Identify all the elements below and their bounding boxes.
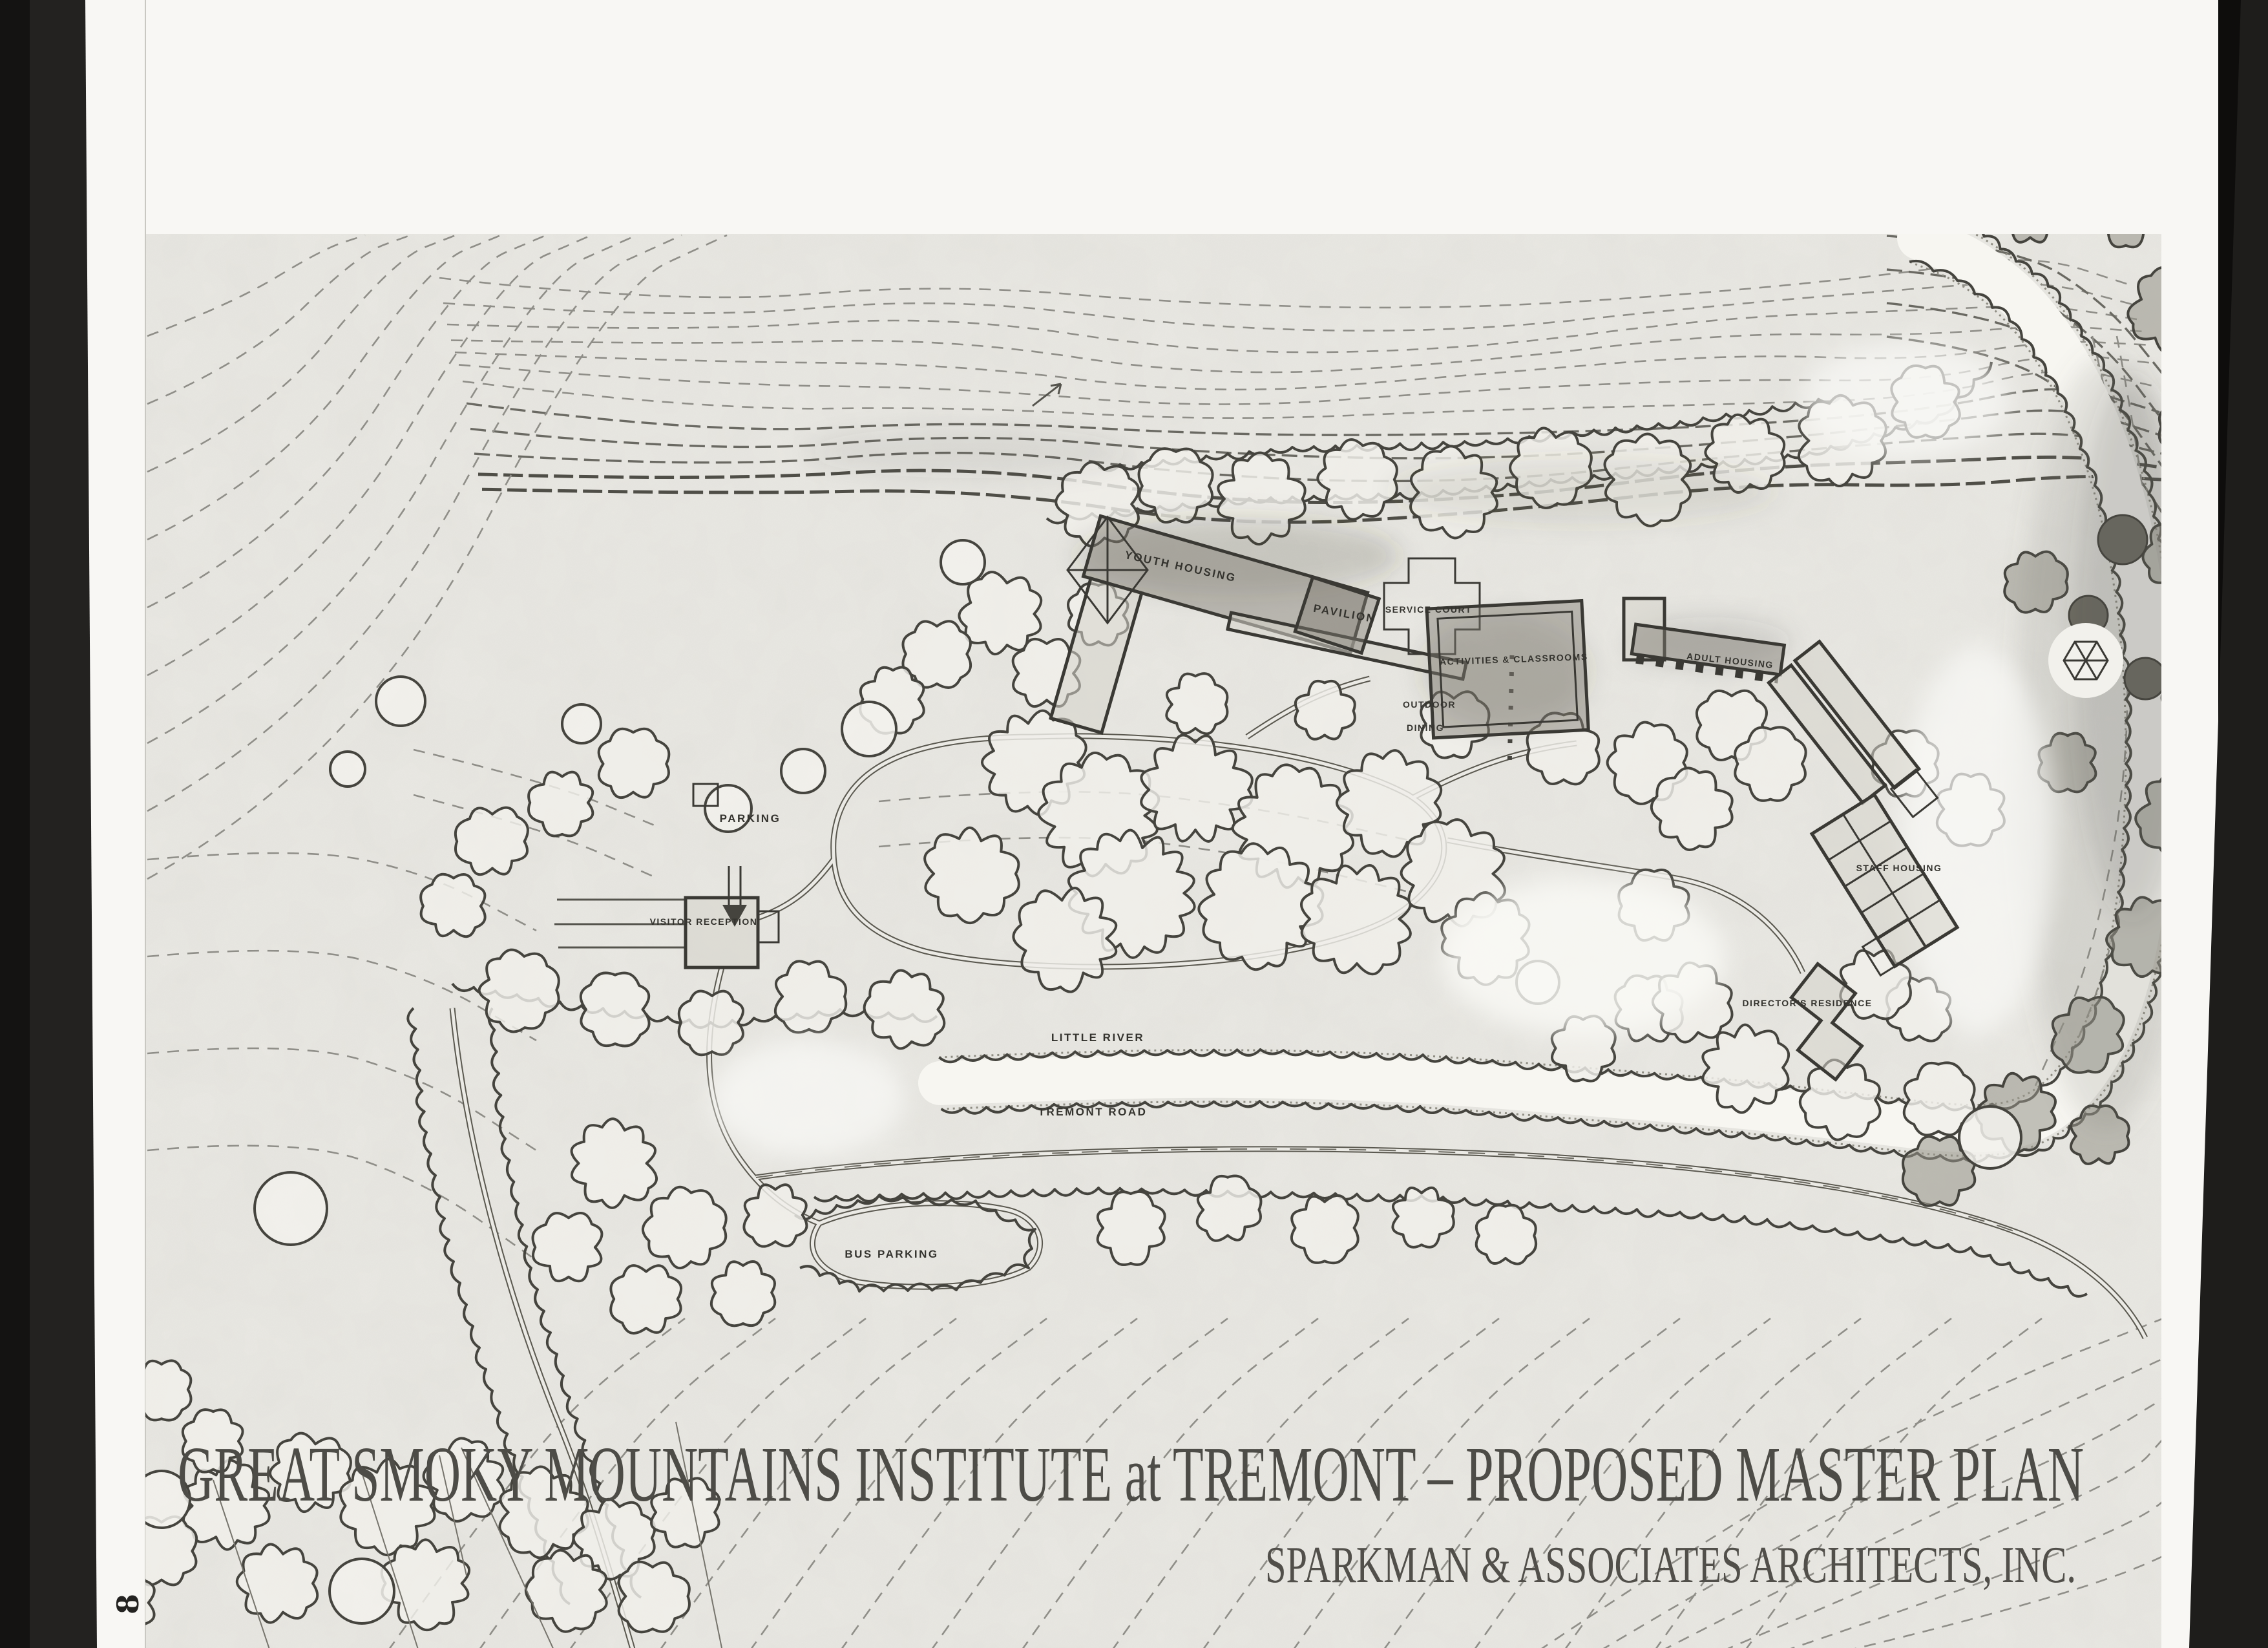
label-little-river: LITTLE RIVER bbox=[1051, 1031, 1144, 1044]
label-tremont-road: TREMONT ROAD bbox=[1038, 1106, 1148, 1118]
label-directors-residence: DIRECTOR'S RESIDENCE bbox=[1742, 998, 1872, 1008]
master-plan-drawing: PARKING VISITOR RECEPTION YOUTH HOUSING … bbox=[0, 0, 2268, 1648]
page-number: 8 bbox=[110, 1594, 145, 1614]
label-outdoor-dining-line1: OUTDOOR bbox=[1403, 699, 1456, 710]
architect-credit: SPARKMAN & ASSOCIATES ARCHITECTS, INC. bbox=[1265, 1537, 2076, 1594]
label-outdoor-dining-line2: DINING bbox=[1407, 723, 1444, 733]
label-visitor-reception: VISITOR RECEPTION bbox=[650, 916, 758, 927]
label-bus-parking: BUS PARKING bbox=[845, 1248, 938, 1260]
scanner-edge-left-deep bbox=[0, 0, 30, 1648]
scanned-site-plan-page: PARKING VISITOR RECEPTION YOUTH HOUSING … bbox=[0, 0, 2268, 1648]
label-service-court: SERVICE COURT bbox=[1385, 604, 1472, 615]
label-parking: PARKING bbox=[720, 812, 781, 825]
hexagon-symbol bbox=[2048, 623, 2123, 698]
label-staff-housing: STAFF HOUSING bbox=[1856, 863, 1942, 873]
sheet-title: GREAT SMOKY MOUNTAINS INSTITUTE at TREMO… bbox=[178, 1431, 2084, 1518]
